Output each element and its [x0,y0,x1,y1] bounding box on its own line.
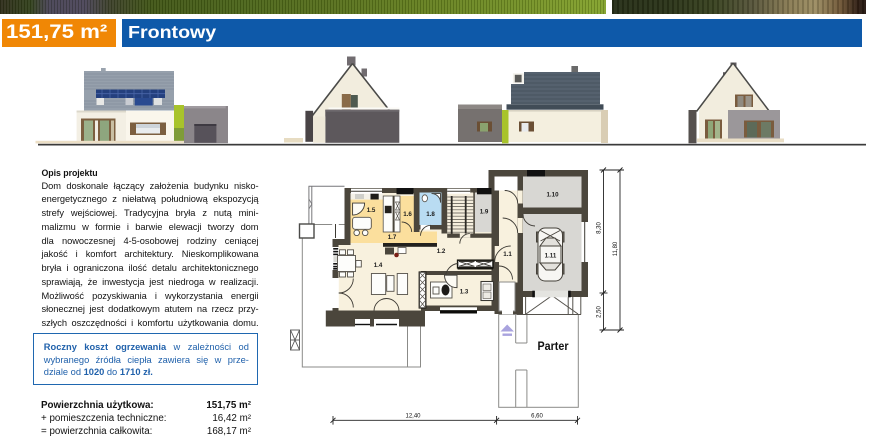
svg-text:1.10: 1.10 [546,192,559,199]
svg-text:1.3: 1.3 [460,289,469,296]
svg-text:12,40: 12,40 [405,414,421,420]
svg-text:1.11: 1.11 [545,253,557,260]
svg-text:2,50: 2,50 [597,306,603,318]
svg-text:1.6: 1.6 [403,211,412,218]
svg-text:1.9: 1.9 [480,209,489,216]
svg-text:11,80: 11,80 [613,241,619,256]
svg-text:1.7: 1.7 [388,234,397,241]
svg-text:8,30: 8,30 [597,222,603,234]
svg-text:1.5: 1.5 [367,207,376,214]
svg-text:1.8: 1.8 [426,211,435,218]
svg-text:6,60: 6,60 [531,414,543,420]
svg-text:Parter: Parter [538,341,569,353]
svg-text:1.2: 1.2 [437,248,446,255]
svg-text:1.4: 1.4 [374,262,383,269]
svg-text:1.1: 1.1 [503,251,512,258]
